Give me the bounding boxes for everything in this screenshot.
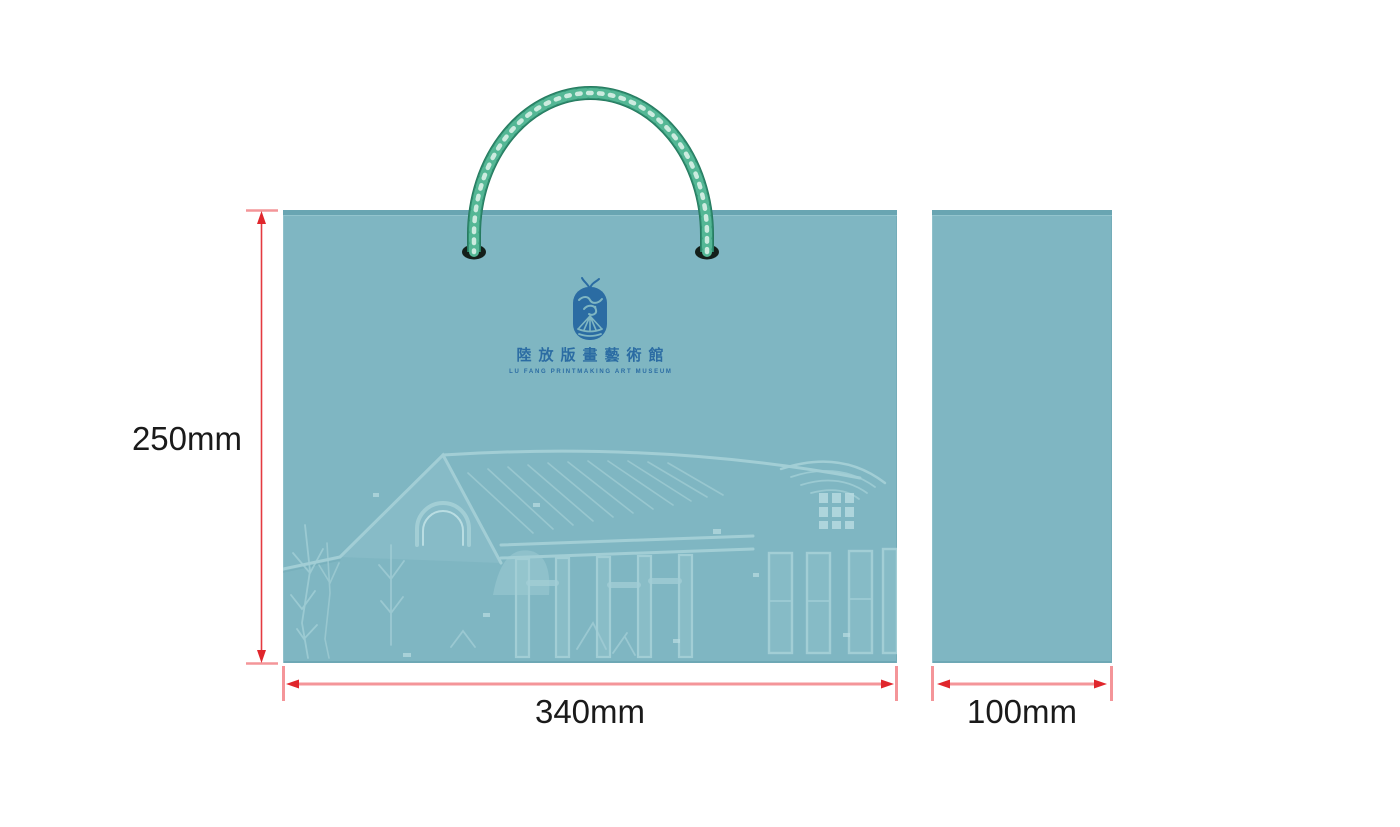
museum-seal-emblem-icon <box>568 276 612 342</box>
logo-english-name: LU FANG PRINTMAKING ART MUSEUM <box>283 369 897 375</box>
height-dimension-label: 250mm <box>118 420 242 458</box>
bag-design-canvas: 陸放版畫藝術館 LU FANG PRINTMAKING ART MUSEUM <box>0 0 1400 827</box>
rope-handle-icon <box>430 75 750 270</box>
front-width-dimension-label: 340mm <box>283 693 897 731</box>
bag-side-panel <box>932 210 1112 663</box>
logo-chinese-name: 陸放版畫藝術館 <box>283 348 897 365</box>
bag-side-top-fold-edge <box>932 210 1112 216</box>
bag-front-panel: 陸放版畫藝術館 LU FANG PRINTMAKING ART MUSEUM <box>283 210 897 663</box>
embossed-building-relief-icon <box>283 433 897 663</box>
side-width-dimension-label: 100mm <box>932 693 1112 731</box>
